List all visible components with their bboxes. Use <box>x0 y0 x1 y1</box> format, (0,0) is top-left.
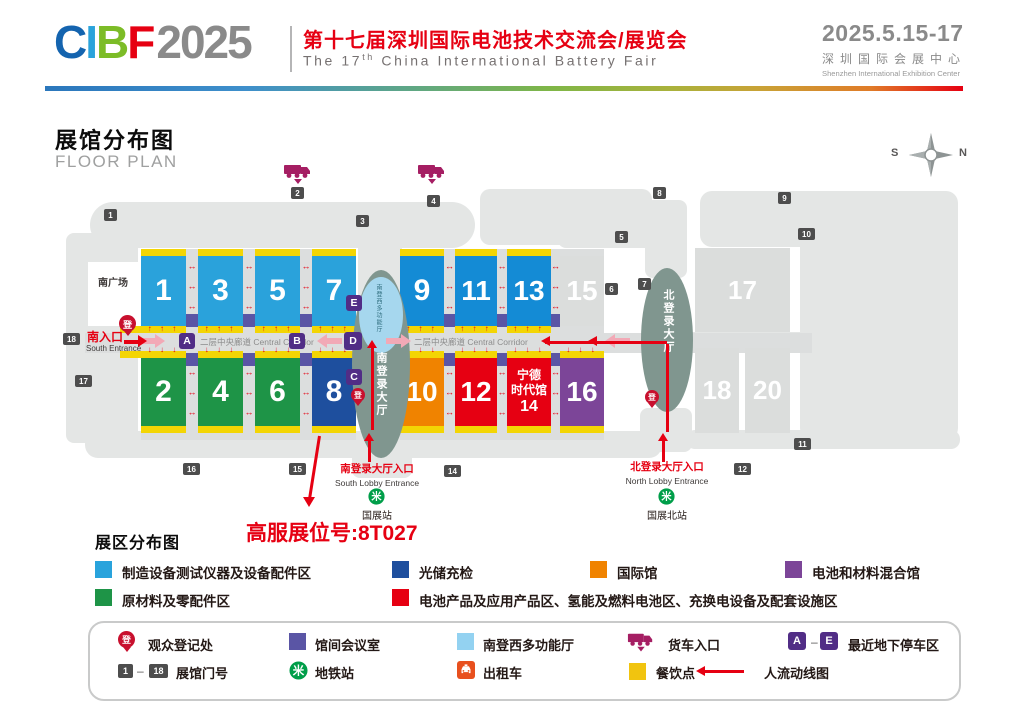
map-area-shape <box>645 200 687 278</box>
north-lobby-entrance-en: North Lobby Entrance <box>619 476 715 486</box>
meeting-room <box>497 314 507 327</box>
hall-20: 20 <box>745 348 790 433</box>
gap-flow-arrow: ↔ <box>551 407 560 417</box>
pedestrian-arrowhead <box>155 334 165 348</box>
gate-14: 14 <box>444 465 461 477</box>
pedestrian-arrow <box>386 338 401 344</box>
meeting-room <box>300 353 312 366</box>
flow-arrowhead <box>658 433 668 441</box>
hall-11: 11 <box>455 256 497 326</box>
south-lobby-entrance-en: South Lobby Entrance <box>329 478 425 488</box>
food-swatch <box>629 663 646 680</box>
hall-number: 8 <box>326 375 343 409</box>
parking-letter-b: B <box>289 333 305 349</box>
hall-number: 15 <box>566 275 597 307</box>
dining-strip <box>198 426 243 433</box>
facility-label: 观众登记处 <box>148 635 213 654</box>
hall-number: 7 <box>326 274 343 308</box>
gap-flow-arrow: ↔ <box>300 367 312 377</box>
legend-color-swatch <box>392 561 409 578</box>
dining-strip <box>141 426 186 433</box>
gate-17: 17 <box>75 375 92 387</box>
hall-12: 12 <box>455 358 497 426</box>
meeting-room <box>497 353 507 366</box>
dining-strip <box>455 426 497 433</box>
hall-16: 16 <box>560 358 604 426</box>
hall-number: 10 <box>406 376 437 408</box>
gap-flow-arrow: ↔ <box>243 301 255 311</box>
gate-4: 4 <box>427 195 440 207</box>
dining-strip <box>141 249 186 256</box>
south-lobby-entrance-cn: 南登录大厅入口 <box>329 461 425 476</box>
hall-number: 17 <box>728 275 757 306</box>
taxi-icon <box>457 661 475 679</box>
gate-7: 7 <box>638 278 651 290</box>
gap-flow-arrow: ↔ <box>186 261 198 271</box>
gap-flow-arrow: ↔ <box>300 407 312 417</box>
metro-station-icon: 米 <box>658 488 675 505</box>
meeting-room <box>243 353 255 366</box>
dining-strip <box>455 249 497 256</box>
gap-flow-arrow: ↔ <box>551 301 560 311</box>
corridor-down-arrows: ↓ ↓ ↓ <box>560 345 604 355</box>
multifunction-swatch <box>457 633 474 650</box>
south-entrance-label-cn: 南入口 <box>87 328 123 345</box>
gate-8: 8 <box>653 187 666 199</box>
gap-flow-arrow: ↔ <box>497 301 507 311</box>
truck-icon <box>283 161 313 185</box>
facility-label: 出租车 <box>483 663 522 682</box>
legend-color-swatch <box>95 589 112 606</box>
flow-line-south-lobby <box>371 346 374 430</box>
hall-18: 18 <box>695 348 739 433</box>
meeting-room <box>444 353 455 366</box>
flow-arrowhead <box>541 336 550 346</box>
corridor-up-arrows: ↑ ↑ ↑ <box>198 324 243 334</box>
flow-arrowhead <box>364 433 374 441</box>
hall-2: 2 <box>141 358 186 426</box>
hall-3: 3 <box>198 256 243 326</box>
corridor-up-arrows: ↑ ↑ ↑ <box>507 324 551 334</box>
facility-label: 餐饮点 <box>656 663 695 682</box>
facility-label: 人流动线图 <box>764 663 829 682</box>
dining-strip <box>255 249 300 256</box>
hall-number: 1 <box>155 274 172 308</box>
legend-label: 电池和材料混合馆 <box>812 562 920 582</box>
hall-number: 13 <box>513 275 544 307</box>
gate-3: 3 <box>356 215 369 227</box>
truck-icon <box>627 630 655 652</box>
hall-number: 2 <box>155 375 172 409</box>
corridor-up-arrows: ↑ ↑ ↑ <box>455 324 497 334</box>
gate-6: 6 <box>605 283 618 295</box>
meeting-room <box>186 314 198 327</box>
hall-number: 20 <box>753 375 782 406</box>
legend-label: 制造设备测试仪器及设备配件区 <box>122 562 311 582</box>
meeting-room <box>444 314 455 327</box>
hall-label: 时代馆 <box>511 383 547 398</box>
hall-6: 6 <box>255 358 300 426</box>
flow-line-south-approach <box>368 440 371 462</box>
north-lobby-entrance-block: 北登录大厅入口 North Lobby Entrance <box>619 459 715 486</box>
metro-icon: 米 <box>289 661 308 680</box>
parking-letter-c: C <box>346 369 362 385</box>
hall-number: 3 <box>212 274 229 308</box>
south-entrance-arrow <box>124 340 138 344</box>
multifunction-hall-vertical-label: 南登西多功能厅 <box>374 284 383 348</box>
hall-14: 宁德时代馆14 <box>507 358 551 426</box>
gate-10: 10 <box>798 228 815 240</box>
legend-color-swatch <box>785 561 802 578</box>
flow-arrow-head <box>696 666 705 676</box>
hall-label: 14 <box>520 398 538 416</box>
hall-7: 7 <box>312 256 356 326</box>
dining-strip <box>312 249 356 256</box>
parking-letter-e: E <box>346 295 362 311</box>
truck-icon <box>417 161 447 185</box>
flow-line-north-lobby <box>666 344 669 432</box>
gap-flow-arrow: ↔ <box>186 387 198 397</box>
gate-16: 16 <box>183 463 200 475</box>
gate-9: 9 <box>778 192 791 204</box>
facility-label: 货车入口 <box>668 635 720 654</box>
legend-color-swatch <box>590 561 607 578</box>
parking-chip-e: E <box>820 632 838 650</box>
flow-arrowhead <box>367 340 377 348</box>
gap-flow-arrow: ↔ <box>444 407 455 417</box>
gap-flow-arrow: ↔ <box>497 407 507 417</box>
dining-strip <box>198 249 243 256</box>
hall-label: 宁德 <box>517 368 541 383</box>
metro-station-north-label: 国展北站 <box>637 507 697 522</box>
gate-1: 1 <box>104 209 117 221</box>
legend-color-swatch <box>95 561 112 578</box>
gap-flow-arrow: ↔ <box>444 261 455 271</box>
pedestrian-arrowhead <box>401 334 411 348</box>
dining-strip <box>560 426 604 433</box>
hall-13: 13 <box>507 256 551 326</box>
map-area-shape <box>90 202 475 248</box>
dining-strip <box>400 426 444 433</box>
pedestrian-arrow <box>327 338 342 344</box>
gap-flow-arrow: ↔ <box>300 301 312 311</box>
booth-callout-arrowhead <box>303 497 315 507</box>
gap-flow-arrow: ↔ <box>444 387 455 397</box>
pedestrian-arrowhead <box>317 334 327 348</box>
gap-flow-arrow: ↔ <box>497 281 507 291</box>
gap-flow-arrow: ↔ <box>444 281 455 291</box>
meeting-room-swatch <box>289 633 306 650</box>
gap-flow-arrow: ↔ <box>186 367 198 377</box>
legend-label: 国际馆 <box>617 562 658 582</box>
facility-label: 展馆门号 <box>176 663 228 682</box>
gate-2: 2 <box>291 187 304 199</box>
hall-number: 9 <box>414 274 431 308</box>
meeting-room <box>243 314 255 327</box>
gap-flow-arrow: ↔ <box>551 367 560 377</box>
svg-text:米: 米 <box>660 490 672 503</box>
zone-legend-title: 展区分布图 <box>95 529 180 553</box>
legend-label: 光储充检 <box>419 562 473 582</box>
gap-flow-arrow: ↔ <box>444 367 455 377</box>
corridor-up-arrows: ↑ ↑ ↑ <box>141 324 186 334</box>
hall-number: 12 <box>460 376 491 408</box>
map-area-shape <box>800 212 958 442</box>
dining-strip <box>400 249 444 256</box>
gap-flow-arrow: ↔ <box>243 261 255 271</box>
legend-color-swatch <box>392 589 409 606</box>
gap-flow-arrow: ↔ <box>444 301 455 311</box>
north-lobby-entrance-cn: 北登录大厅入口 <box>619 459 715 474</box>
meeting-room <box>551 314 560 327</box>
gate-18: 18 <box>63 333 80 345</box>
hall-15: 15 <box>560 256 604 326</box>
meeting-room <box>186 353 198 366</box>
parking-chip-a: A <box>788 632 806 650</box>
gap-flow-arrow: ↔ <box>243 387 255 397</box>
gate-chip-18: 18 <box>149 664 168 678</box>
gap-flow-arrow: ↔ <box>300 261 312 271</box>
south-lobby-vertical-label: 南登录大厅 <box>373 352 389 442</box>
gap-flow-arrow: ↔ <box>243 281 255 291</box>
gap-flow-arrow: ↔ <box>497 387 507 397</box>
south-entrance-label-en: South Entrance <box>86 344 141 353</box>
meeting-room <box>300 314 312 327</box>
floor-plan-poster: CIBF2025 第十七届深圳国际电池技术交流会/展览会 The 17th Ch… <box>0 0 1024 724</box>
central-corridor-label: 二层中央廊道 Central Corridor <box>414 336 528 348</box>
facility-label: 最近地下停车区 <box>848 635 939 654</box>
hall-number: 4 <box>212 375 229 409</box>
dining-strip <box>312 426 356 433</box>
gate-chip-1: 1 <box>118 664 133 678</box>
hall-17: 17 <box>695 248 790 332</box>
hall-number: 18 <box>703 375 732 406</box>
meeting-room <box>551 353 560 366</box>
floor-plan-map: 南广场 二层中央廊道 Central Corridor 二层中央廊道 Centr… <box>0 0 1024 724</box>
svg-text:米: 米 <box>292 663 305 677</box>
parking-letter-d: D <box>344 332 362 350</box>
gap-flow-arrow: ↔ <box>551 261 560 271</box>
legend-label: 原材料及零配件区 <box>122 590 230 610</box>
hall-4: 4 <box>198 358 243 426</box>
gap-flow-arrow: ↔ <box>186 281 198 291</box>
gate-15: 15 <box>289 463 306 475</box>
gap-flow-arrow: ↔ <box>300 281 312 291</box>
facility-label: 馆间会议室 <box>315 635 380 654</box>
gap-flow-arrow: ↔ <box>497 261 507 271</box>
hall-1: 1 <box>141 256 186 326</box>
gap-flow-arrow: ↔ <box>243 367 255 377</box>
gap-flow-arrow: ↔ <box>497 367 507 377</box>
flow-line-corridor <box>545 341 667 344</box>
gap-flow-arrow: ↔ <box>186 301 198 311</box>
registration-pin: 登 <box>645 390 659 404</box>
hall-5: 5 <box>255 256 300 326</box>
gate-11: 11 <box>794 438 811 450</box>
registration-pin: 登 <box>351 388 365 402</box>
dining-strip <box>507 426 551 433</box>
dining-strip <box>255 426 300 433</box>
facility-label: 地铁站 <box>315 663 354 682</box>
flow-arrow-icon <box>702 670 744 673</box>
gap-flow-arrow: ↔ <box>300 387 312 397</box>
hall-9: 9 <box>400 256 444 326</box>
flow-arrowhead <box>588 336 597 346</box>
booth-number-callout: 高服展位号:8T027 <box>246 517 418 547</box>
gap-flow-arrow: ↔ <box>243 407 255 417</box>
map-area-shape <box>558 214 653 248</box>
gap-flow-arrow: ↔ <box>551 387 560 397</box>
hall-number: 16 <box>566 376 597 408</box>
registration-pin-icon: 登 <box>118 631 135 648</box>
facilities-legend-box: 登 观众登记处 馆间会议室 南登西多功能厅 货车入口 A – E 最近地下停车区… <box>88 621 961 701</box>
gap-flow-arrow: ↔ <box>186 407 198 417</box>
svg-text:米: 米 <box>370 490 382 503</box>
hall-number: 11 <box>461 275 491 307</box>
south-plaza-label: 南广场 <box>98 274 128 289</box>
gate-12: 12 <box>734 463 751 475</box>
legend-label: 电池产品及应用产品区、氢能及燃料电池区、充换电设备及配套设施区 <box>419 590 838 610</box>
dining-strip <box>507 249 551 256</box>
gate-5: 5 <box>615 231 628 243</box>
metro-station-icon: 米 <box>368 488 385 505</box>
hall-number: 6 <box>269 375 286 409</box>
facility-label: 南登西多功能厅 <box>483 635 574 654</box>
parking-letter-a: A <box>179 333 195 349</box>
south-lobby-entrance-block: 南登录大厅入口 South Lobby Entrance <box>329 461 425 488</box>
hall-number: 5 <box>269 274 286 308</box>
gap-flow-arrow: ↔ <box>551 281 560 291</box>
